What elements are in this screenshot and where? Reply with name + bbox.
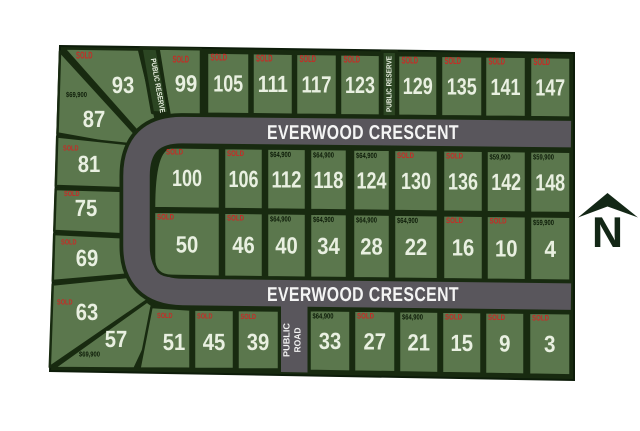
svg-text:SOLD: SOLD: [357, 312, 374, 321]
svg-text:$64,900: $64,900: [270, 215, 291, 224]
svg-text:27: 27: [364, 329, 387, 355]
svg-text:PUBLIC: PUBLIC: [282, 322, 292, 357]
svg-text:142: 142: [491, 169, 521, 195]
svg-text:SOLD: SOLD: [227, 149, 244, 158]
svg-text:28: 28: [360, 234, 383, 260]
svg-text:SOLD: SOLD: [157, 311, 173, 320]
svg-text:SOLD: SOLD: [446, 151, 463, 160]
svg-text:87: 87: [83, 106, 106, 132]
svg-text:57: 57: [105, 326, 128, 352]
svg-text:100: 100: [172, 165, 202, 191]
svg-text:$64,900: $64,900: [313, 150, 334, 159]
svg-text:SOLD: SOLD: [397, 151, 414, 160]
svg-text:15: 15: [451, 330, 474, 356]
svg-text:$64,900: $64,900: [313, 215, 334, 224]
svg-text:SOLD: SOLD: [61, 238, 77, 247]
svg-text:10: 10: [495, 235, 518, 261]
svg-text:SOLD: SOLD: [344, 55, 361, 66]
svg-text:SOLD: SOLD: [63, 144, 79, 153]
svg-text:34: 34: [317, 233, 340, 259]
svg-text:EVERWOOD CRESCENT: EVERWOOD CRESCENT: [267, 122, 459, 144]
svg-text:SOLD: SOLD: [256, 53, 273, 64]
svg-text:SOLD: SOLD: [488, 313, 505, 322]
svg-text:136: 136: [448, 169, 478, 195]
svg-text:50: 50: [176, 231, 199, 257]
svg-text:SOLD: SOLD: [446, 216, 463, 225]
svg-text:SOLD: SOLD: [532, 314, 549, 323]
svg-text:112: 112: [272, 167, 302, 193]
svg-text:SOLD: SOLD: [241, 312, 257, 321]
svg-text:135: 135: [447, 73, 477, 99]
svg-text:129: 129: [403, 73, 433, 99]
svg-text:130: 130: [401, 168, 431, 194]
svg-text:3: 3: [544, 331, 556, 357]
svg-text:16: 16: [452, 235, 475, 261]
svg-text:$59,900: $59,900: [533, 218, 554, 227]
svg-text:$69,900: $69,900: [66, 90, 87, 99]
svg-text:124: 124: [357, 168, 387, 194]
svg-text:147: 147: [535, 75, 565, 101]
svg-text:118: 118: [314, 167, 344, 193]
svg-text:21: 21: [408, 329, 431, 355]
svg-text:SOLD: SOLD: [489, 57, 506, 68]
svg-text:63: 63: [76, 299, 99, 325]
svg-text:81: 81: [78, 151, 101, 177]
svg-text:4: 4: [544, 236, 556, 262]
svg-text:SOLD: SOLD: [534, 57, 551, 68]
svg-text:75: 75: [75, 195, 98, 221]
svg-text:ROAD: ROAD: [293, 327, 303, 352]
svg-text:69: 69: [76, 245, 99, 271]
svg-text:SOLD: SOLD: [445, 313, 462, 322]
svg-text:99: 99: [175, 71, 198, 97]
svg-text:$59,900: $59,900: [490, 152, 511, 161]
svg-text:141: 141: [491, 74, 521, 100]
svg-text:106: 106: [229, 166, 259, 192]
svg-text:N: N: [592, 209, 623, 257]
svg-text:39: 39: [247, 329, 270, 355]
svg-text:SOLD: SOLD: [173, 55, 190, 66]
svg-text:46: 46: [232, 232, 255, 258]
svg-text:$64,900: $64,900: [402, 313, 423, 322]
svg-text:SOLD: SOLD: [157, 213, 174, 222]
svg-text:22: 22: [405, 234, 428, 260]
svg-text:40: 40: [275, 233, 298, 259]
svg-text:$64,900: $64,900: [313, 312, 334, 321]
svg-text:148: 148: [535, 169, 565, 195]
svg-text:$64,900: $64,900: [270, 150, 291, 159]
svg-text:$64,900: $64,900: [356, 216, 377, 225]
svg-text:SOLD: SOLD: [227, 214, 244, 223]
svg-text:SOLD: SOLD: [402, 55, 419, 66]
svg-text:SOLD: SOLD: [211, 53, 228, 64]
svg-text:SOLD: SOLD: [197, 312, 213, 321]
svg-text:SOLD: SOLD: [445, 56, 462, 67]
svg-text:51: 51: [163, 329, 186, 355]
svg-text:EVERWOOD CRESCENT: EVERWOOD CRESCENT: [267, 284, 459, 306]
svg-text:9: 9: [499, 331, 511, 357]
svg-text:$64,900: $64,900: [356, 151, 377, 160]
svg-text:$64,900: $64,900: [397, 216, 418, 225]
svg-text:$69,900: $69,900: [79, 350, 100, 359]
svg-text:$59,900: $59,900: [533, 153, 554, 162]
svg-text:45: 45: [203, 329, 226, 355]
svg-text:93: 93: [112, 72, 135, 98]
svg-text:SOLD: SOLD: [57, 298, 73, 307]
svg-text:33: 33: [319, 328, 342, 354]
svg-text:123: 123: [345, 72, 375, 98]
svg-text:105: 105: [213, 71, 243, 97]
svg-text:PUBLIC RESERVE: PUBLIC RESERVE: [385, 56, 394, 112]
svg-text:111: 111: [258, 71, 288, 97]
svg-text:SOLD: SOLD: [64, 189, 80, 198]
svg-text:SOLD: SOLD: [76, 51, 93, 62]
svg-text:SOLD: SOLD: [490, 217, 507, 226]
svg-text:SOLD: SOLD: [166, 148, 183, 157]
svg-text:117: 117: [302, 72, 332, 98]
svg-text:SOLD: SOLD: [300, 54, 317, 65]
